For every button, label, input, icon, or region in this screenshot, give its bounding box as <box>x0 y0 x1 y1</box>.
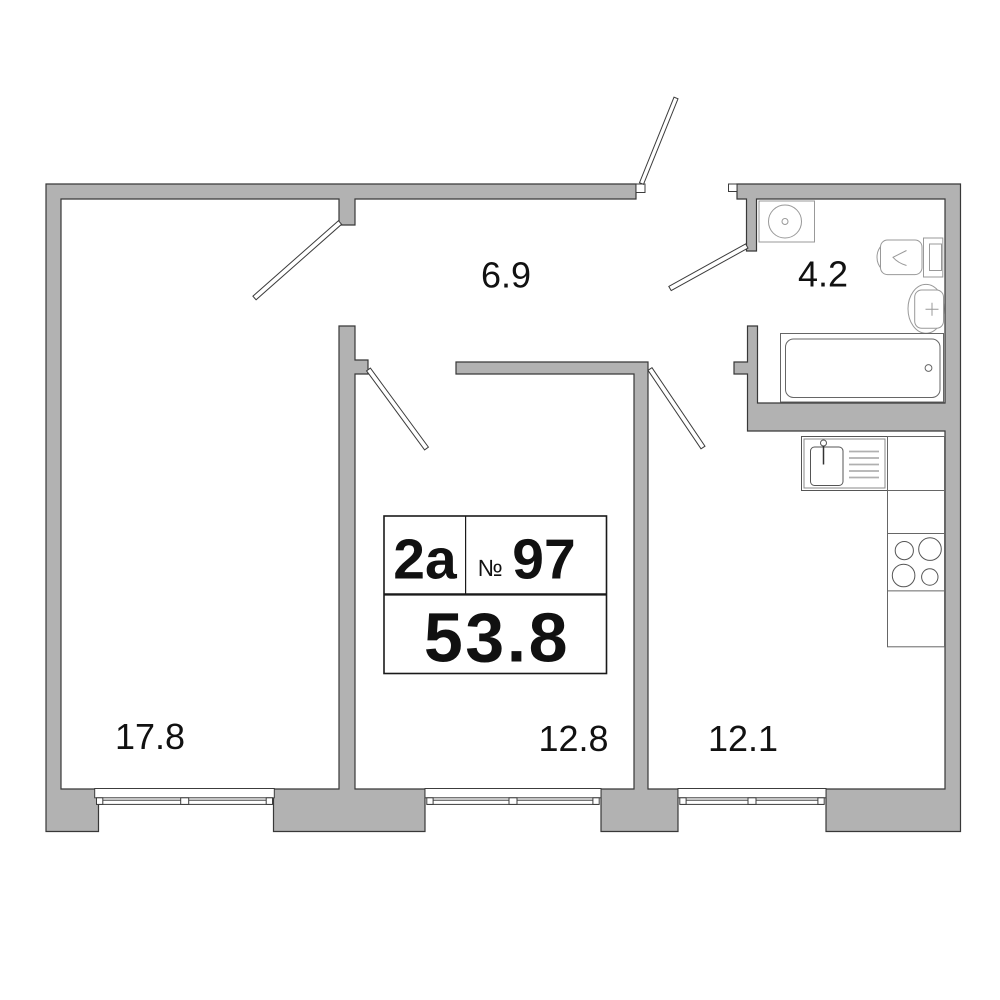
svg-text:17.8: 17.8 <box>115 716 185 757</box>
svg-text:4.2: 4.2 <box>798 254 848 295</box>
svg-text:12.8: 12.8 <box>538 718 608 759</box>
svg-text:6.9: 6.9 <box>481 255 531 296</box>
svg-text:№: № <box>478 555 503 581</box>
svg-text:53.8: 53.8 <box>424 599 570 677</box>
svg-text:97: 97 <box>512 528 575 592</box>
svg-text:12.1: 12.1 <box>708 718 778 759</box>
svg-text:2a: 2a <box>393 528 458 592</box>
